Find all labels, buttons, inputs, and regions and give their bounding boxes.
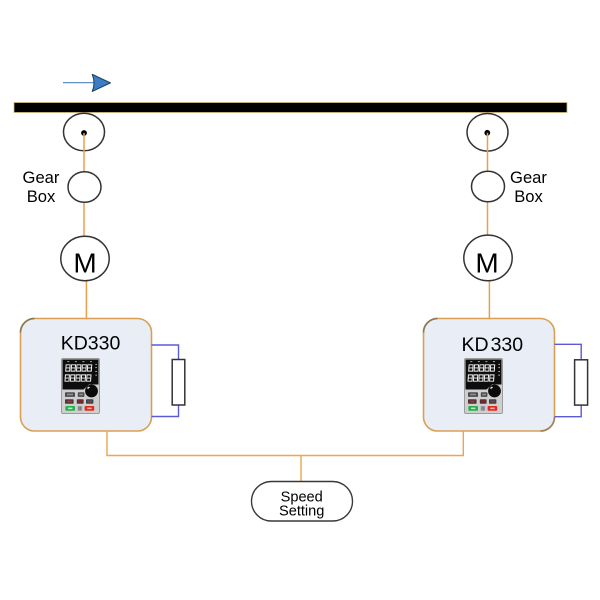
svg-text:Gear: Gear (510, 168, 547, 187)
svg-text:Box: Box (514, 187, 543, 206)
svg-text:KD330: KD330 (461, 334, 523, 356)
svg-text:Setting: Setting (279, 503, 324, 519)
svg-text:Box: Box (27, 187, 56, 206)
svg-text:Gear: Gear (23, 168, 60, 187)
svg-text:KD330: KD330 (61, 333, 121, 355)
svg-text:M: M (73, 248, 96, 279)
svg-text:M: M (475, 248, 498, 279)
